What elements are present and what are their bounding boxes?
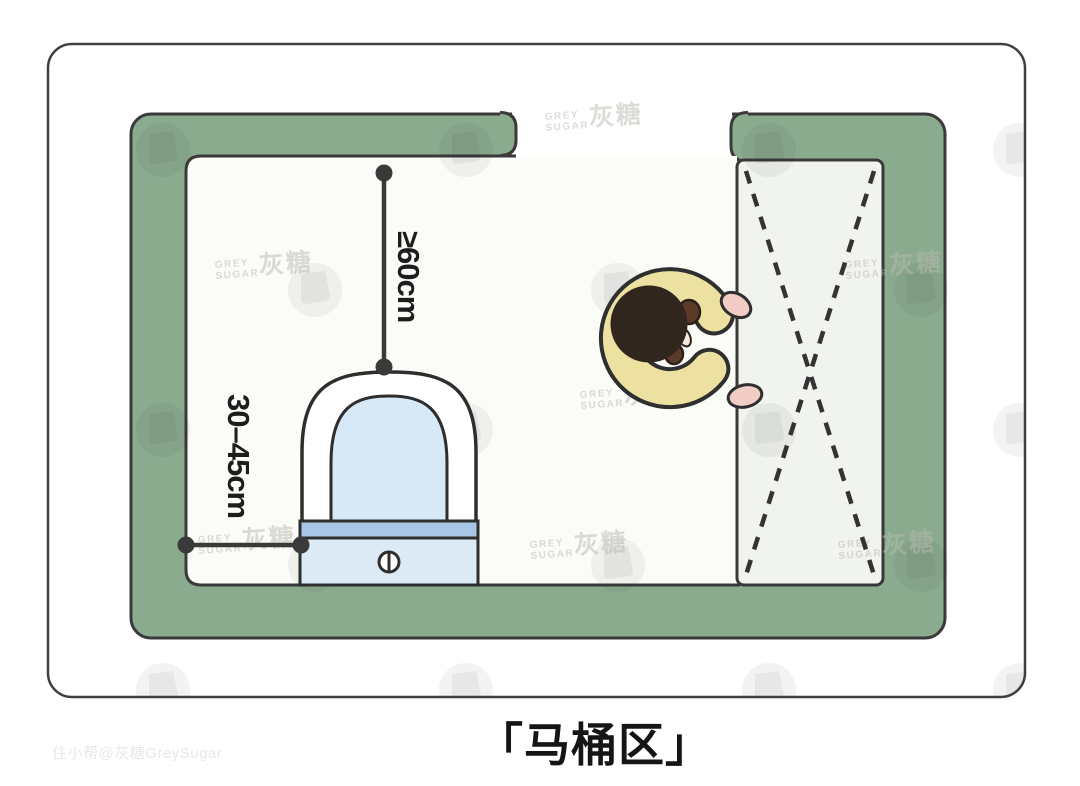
svg-text:灰糖: 灰糖 [258,247,314,280]
toilet [300,372,478,585]
person-hair [611,286,688,363]
brand-logo-watermark [136,663,190,717]
author-credit-watermark: 住小帮@灰糖GreySugar [52,742,222,763]
brand-logo-watermark [993,403,1047,457]
diagram-caption: 「马桶区」 [477,709,712,775]
toilet-zone-diagram: GREYSUGAR灰糖GREYSUGAR灰糖GREYSUGAR灰糖GREYSUG… [0,0,1080,786]
floorplan-canvas: GREYSUGAR灰糖GREYSUGAR灰糖GREYSUGAR灰糖GREYSUG… [0,0,1080,786]
brand-logo-watermark [742,663,796,717]
side-clearance-label: 30–45cm [223,394,254,518]
brand-logo-watermark [993,123,1047,177]
brand-logo-watermark [136,403,190,457]
brand-logo-watermark [136,123,190,177]
front-clearance-label: ≥60cm [393,231,424,322]
svg-text:灰糖: 灰糖 [888,247,944,280]
toilet-tank-lid [300,521,478,538]
brand-logo-watermark [993,663,1047,717]
brand-logo-watermark [439,123,493,177]
svg-text:灰糖: 灰糖 [881,527,937,560]
svg-text:灰糖: 灰糖 [588,99,644,132]
door-swing-area [737,160,883,585]
svg-text:灰糖: 灰糖 [241,522,297,555]
brand-logo-watermark [742,123,796,177]
svg-text:灰糖: 灰糖 [573,527,629,560]
toilet-bowl [331,396,447,522]
